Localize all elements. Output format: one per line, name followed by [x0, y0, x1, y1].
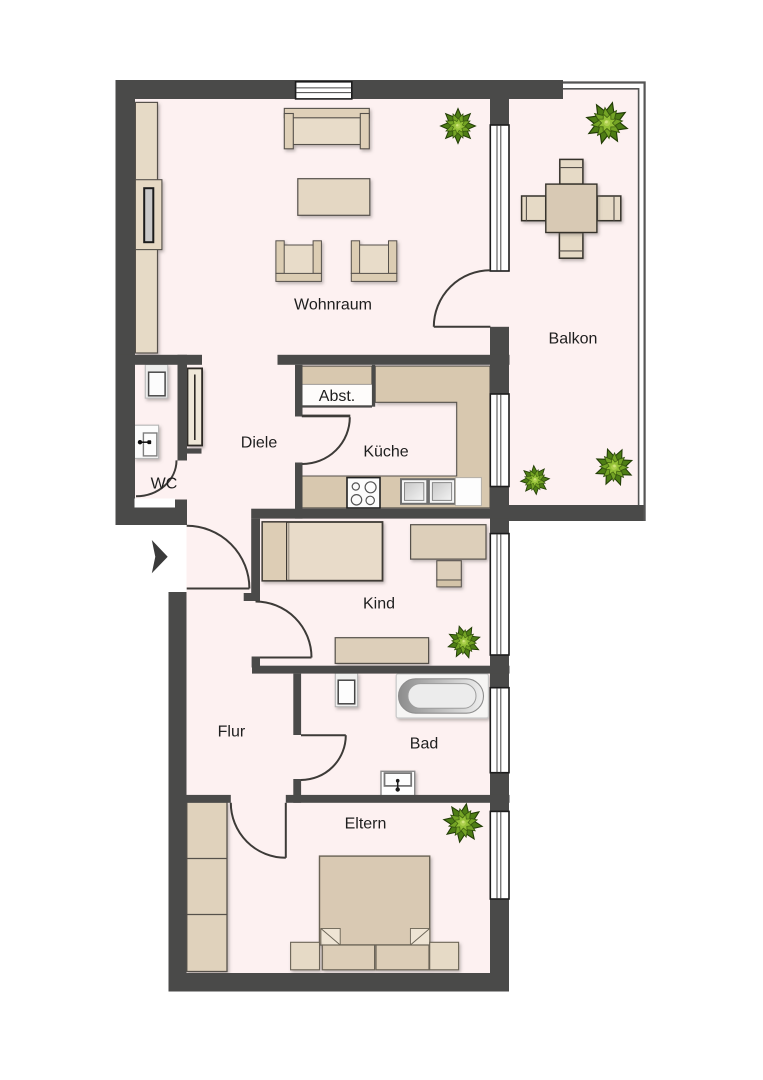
svg-text:WC: WC [151, 476, 178, 493]
svg-text:Eltern: Eltern [345, 816, 387, 833]
svg-text:Küche: Küche [363, 444, 408, 461]
svg-text:Abst.: Abst. [319, 388, 355, 405]
svg-text:Bad: Bad [410, 736, 438, 753]
svg-text:Balkon: Balkon [549, 331, 598, 348]
svg-text:Diele: Diele [241, 435, 278, 452]
svg-text:Kind: Kind [363, 596, 395, 613]
svg-text:Wohnraum: Wohnraum [294, 297, 372, 314]
svg-text:Flur: Flur [218, 724, 246, 741]
